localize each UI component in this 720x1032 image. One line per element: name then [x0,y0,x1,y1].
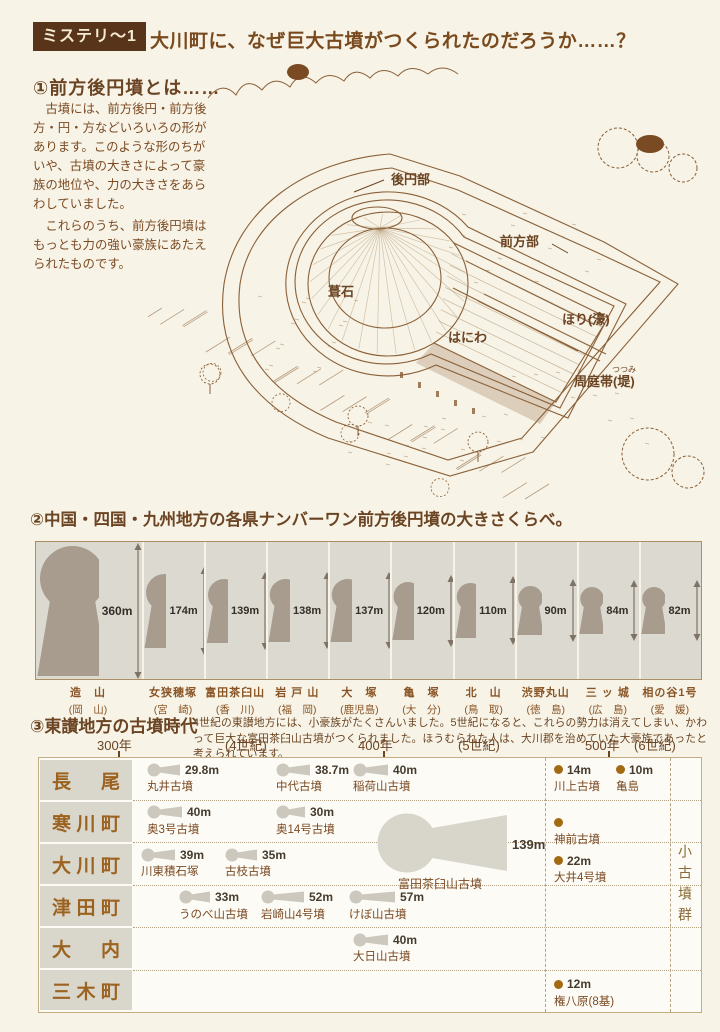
tomb-entry: 38.7m中代古墳 [276,762,349,794]
tomb-entry: 35m古枝古墳 [225,847,286,879]
keyhole-shape [455,583,477,638]
tomb-entry-line: 52m [261,890,333,905]
keyhole-shape [579,587,604,634]
timeline-row: 12m権八原(8基) [133,971,701,1013]
keyhole-shape [144,574,166,648]
timeline-content: 29.8m丸井古墳38.7m中代古墳40m稲荷山古墳14m川上古墳10m亀島40… [133,758,701,1012]
keyhole-shape [330,579,352,642]
keyhole-icon [353,763,389,777]
timeline-scale: 300年(4世紀)400年(5世紀)500年(6世紀) [0,735,720,757]
keyhole-shape [641,587,666,634]
tomb-size: 40m [187,805,211,819]
tomb-cell: 82m [641,542,701,679]
keyhole-shape [36,546,99,676]
label-haniwa: はにわ [448,330,487,345]
tomb-size: 30m [310,805,334,819]
tomb-name: 大日山古墳 [353,948,417,964]
tomb-entry-line: 29.8m [147,762,219,777]
round-tomb-dot-icon [554,980,563,989]
label-bank: 周庭帯(堤) [574,374,635,389]
tomb-name: 中代古墳 [276,778,349,794]
tomb-caption: 大 塚(鹿児島) [329,684,391,717]
tomb-prefecture: (愛 媛) [640,702,700,717]
tomb-size: 38.7m [315,763,349,777]
tomb-entry-line: 40m [353,932,417,947]
tomb-caption: 亀 塚(大 分) [391,684,453,717]
scale-label: (4世紀) [225,735,267,754]
tomb-entry-line: 30m [276,805,335,820]
tomb-prefecture: (鹿児島) [329,702,389,717]
tomb-size: 12m [567,977,591,991]
tomb-caption: 岩 戸 山(福 岡) [267,684,329,717]
town-char: 町 [101,893,120,920]
tomb-entry: 33mうのべ山古墳 [179,890,248,922]
town-char: 町 [101,809,120,836]
tomb-size: 14m [567,763,591,777]
tomb-name: けぼ山古墳 [349,906,424,922]
town-char: 町 [101,851,120,878]
height-arrow [133,543,142,679]
keyhole-icon [261,890,305,904]
kofun-illustration: 後円部 前方部 葺石 はにわ ほり(濠) つつみ 周庭帯(堤) [148,56,714,508]
tomb-length-label: 139m [231,605,259,617]
tomb-entry: 40m稲荷山古墳 [353,762,417,794]
town-char: 長 [52,767,71,794]
tomb-entry: 29.8m丸井古墳 [147,762,219,794]
tomb-entry-line: 14m [554,762,600,777]
tomb-size: 52m [309,890,333,904]
tomb-size: 40m [393,933,417,947]
label-bank-furigana: つつみ [612,365,636,374]
keyhole-icon [147,763,181,777]
town-cell: 寒川町 [40,802,132,842]
tomb-name: 奥3号古墳 [147,821,211,837]
tomb-cell: 137m [330,542,392,679]
tomb-name: うのべ山古墳 [179,906,248,922]
town-char: 田 [76,893,95,920]
town-char: 川 [76,851,95,878]
tomb-length-label: 360m [102,604,133,618]
tomb-entry: 30m奥14号古墳 [276,805,335,837]
tomb-size: 10m [629,763,653,777]
illustration-shading [148,64,704,508]
scale-label: (5世紀) [458,735,500,754]
tomb-name: 川上古墳 [554,778,600,794]
big-keyhole-shape [376,811,508,875]
small-kofun-group-label: 小古墳群 [675,844,695,928]
tomb-name: 岩 戸 山 [267,684,327,700]
scale-label: (6世紀) [634,735,676,754]
section2-heading: ②中国・四国・九州地方の各県ナンバーワン前方後円墳の大きさくらべ。 [30,506,572,530]
tomb-entry: 40m奥3号古墳 [147,805,211,837]
page-title: 大川町に、なぜ巨大古墳がつくられたのだろうか……？ [150,26,636,53]
keyhole-icon [225,848,258,862]
tomb-entry: 14m川上古墳 [554,762,600,794]
tomb-length-label: 120m [417,605,445,617]
tomb-size: 39m [180,848,204,862]
big-tomb-name: 富田茶臼山古墳 [398,875,482,892]
tomb-name: 古枝古墳 [225,863,286,879]
town-char: 川 [76,809,95,836]
tomb-cell: 139m [206,542,268,679]
tomb-entry-line: 12m [554,977,614,992]
height-arrow [508,576,515,645]
tomb-prefecture: (福 岡) [267,702,327,717]
tomb-caption: 渋野丸山(徳 島) [516,684,578,717]
tomb-name: 渋野丸山 [516,684,576,700]
tomb-size: 40m [393,763,417,777]
tomb-name: 亀島 [616,778,653,794]
tomb-entry: 52m岩崎山4号墳 [261,890,333,922]
tomb-length-label: 110m [479,605,507,617]
keyhole-icon [179,890,211,904]
tomb-length-label: 138m [293,605,321,617]
tomb-name: 北 山 [454,684,514,700]
keyhole-icon [141,848,176,862]
tomb-length-label: 82m [668,605,690,617]
tomb-name: 川東積石塚 [141,863,204,879]
tomb-length-label: 90m [545,605,567,617]
tomb-length-label: 84m [606,605,628,617]
tomb-prefecture: (徳 島) [516,702,576,717]
tomb-entry-line: 35m [225,847,286,862]
round-tomb-dot-icon [616,765,625,774]
keyhole-icon [276,763,311,777]
tomb-entry-line: 40m [353,762,417,777]
town-cell: 大川町 [40,844,132,884]
tomb-caption: 北 山(鳥 取) [454,684,516,717]
tomb-caption: 富田茶臼山(香 川) [205,684,267,717]
keyhole-icon [147,805,183,819]
round-tomb-dot-icon [554,765,563,774]
tomb-prefecture: (鳥 取) [454,702,514,717]
tomb-name: 三 ッ 城 [578,684,638,700]
keyhole-icon [353,933,389,947]
keyhole-shape [206,579,228,643]
tomb-length-label: 137m [355,605,383,617]
tomb-cell: 360m [36,542,144,679]
town-cell: 長尾 [40,760,132,800]
tomb-cell: 138m [268,542,330,679]
tomb-caption: 三 ッ 城(広 島) [578,684,640,717]
tomb-entry-line: 38.7m [276,762,349,777]
town-char: 内 [101,935,120,962]
tomb-caption: 相の谷1号(愛 媛) [640,684,702,717]
tomb-entry-line: 39m [141,847,204,862]
height-arrow [568,579,577,642]
keyhole-shape [517,586,542,635]
tomb-name: 女狭穂塚 [143,684,203,700]
tomb-prefecture: (広 島) [578,702,638,717]
tomb-size: 35m [262,848,286,862]
tomb-entry-line: 40m [147,805,211,820]
town-char: 町 [101,977,120,1004]
tomb-entry: 40m大日山古墳 [353,932,417,964]
tomb-length-label: 174m [169,605,197,617]
keyhole-icon [276,805,306,819]
mystery-tag: ミステリ〜1 [33,22,146,51]
keyhole-shape [392,582,413,640]
town-cell: 大内 [40,928,132,968]
tomb-cell: 110m [455,542,517,679]
tomb-entry-line: 10m [616,762,653,777]
tomb-entry: 12m権八原(8基) [554,977,614,1009]
town-cell: 津田町 [40,886,132,926]
big-tomb-size: 139m [512,837,545,852]
tomb-prefecture: (大 分) [391,702,451,717]
scale-label: 500年 [585,735,620,754]
label-moat: ほり(濠) [562,312,610,327]
tomb-size-cells: 360m174m139m138m137m120m110m90m84m82m [35,541,702,680]
timeline-row: 29.8m丸井古墳38.7m中代古墳40m稲荷山古墳14m川上古墳10m亀島 [133,758,701,801]
height-arrow [322,572,328,649]
height-arrow [199,567,204,655]
label-front-part: 前方部 [500,234,539,249]
tomb-name: 岩崎山4号墳 [261,906,333,922]
tomb-entry: 39m川東積石塚 [141,847,204,879]
timeline-row: 40m大日山古墳 [133,928,701,971]
town-char: 大 [52,851,71,878]
label-fukiishi: 葺石 [328,284,354,299]
tomb-cell: 120m [392,542,454,679]
tomb-entry: 10m亀島 [616,762,653,794]
height-arrow [692,580,701,641]
section3-heading: ③東讃地方の古墳時代 [30,712,197,737]
tomb-name: 稲荷山古墳 [353,778,417,794]
height-arrow [260,572,266,650]
tomb-name: 亀 塚 [391,684,451,700]
tomb-size: 33m [215,890,239,904]
height-arrow [629,580,638,641]
town-char: 三 [52,977,71,1004]
tomb-cell: 84m [579,542,641,679]
tomb-name: 権八原(8基) [554,993,614,1009]
tomb-size: 29.8m [185,763,219,777]
textbook-page: ミステリ〜1 大川町に、なぜ巨大古墳がつくられたのだろうか……？ ①前方後円墳と… [0,0,720,1032]
height-arrow [384,572,390,649]
town-char: 大 [52,935,71,962]
town-cell: 三木町 [40,970,132,1010]
town-column: 長尾寒川町大川町津田町大内三木町 [40,759,132,1011]
tomb-prefecture: (香 川) [205,702,265,717]
tomb-name: 奥14号古墳 [276,821,335,837]
tomb-name: 造 山 [35,684,141,700]
timeline-chart: 長尾寒川町大川町津田町大内三木町 29.8m丸井古墳38.7m中代古墳40m稲荷… [38,757,702,1013]
tomb-cell: 90m [517,542,579,679]
scale-label: 300年 [97,735,132,754]
tomb-name: 相の谷1号 [640,684,700,700]
town-char: 尾 [101,767,120,794]
tomb-name: 富田茶臼山 [205,684,265,700]
scale-label: 400年 [358,735,393,754]
keyhole-shape [268,579,290,642]
height-arrow [446,575,453,647]
tomb-entry-line: 33m [179,890,248,905]
tomb-name: 大 塚 [329,684,389,700]
tomb-cell: 174m [144,542,206,679]
tomb-name: 丸井古墳 [147,778,219,794]
tomb-size-chart: 360m174m139m138m137m120m110m90m84m82m 造 … [35,541,702,717]
town-char: 木 [76,977,95,1004]
town-char: 寒 [52,809,71,836]
big-tomb-entry: 139m 富田茶臼山古墳 [376,811,591,896]
town-char: 津 [52,893,71,920]
label-round-part: 後円部 [391,172,430,187]
